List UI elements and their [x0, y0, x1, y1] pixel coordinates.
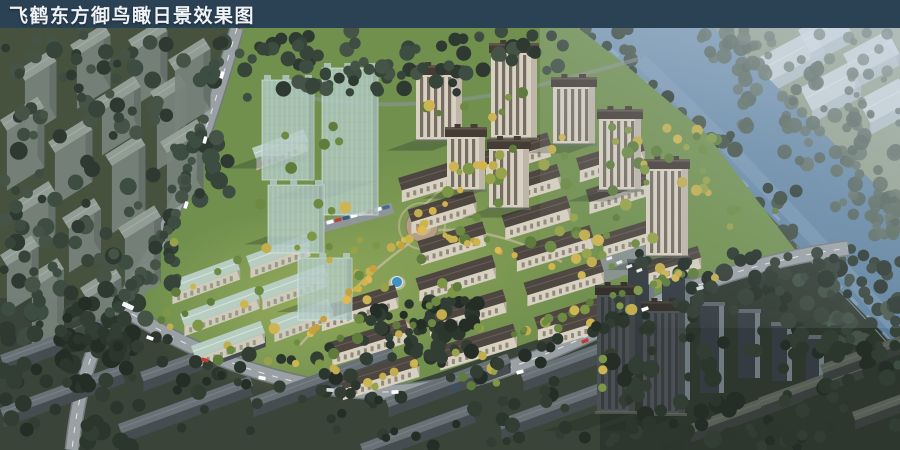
- screenshot-aerial-rendering: 飞鹤东方御鸟瞰日景效果图: [0, 0, 900, 450]
- aerial-rendering: [0, 0, 900, 450]
- title-bar: 飞鹤东方御鸟瞰日景效果图: [0, 0, 900, 28]
- atmospheric-haze: [540, 28, 900, 328]
- title-text: 飞鹤东方御鸟瞰日景效果图: [0, 1, 255, 28]
